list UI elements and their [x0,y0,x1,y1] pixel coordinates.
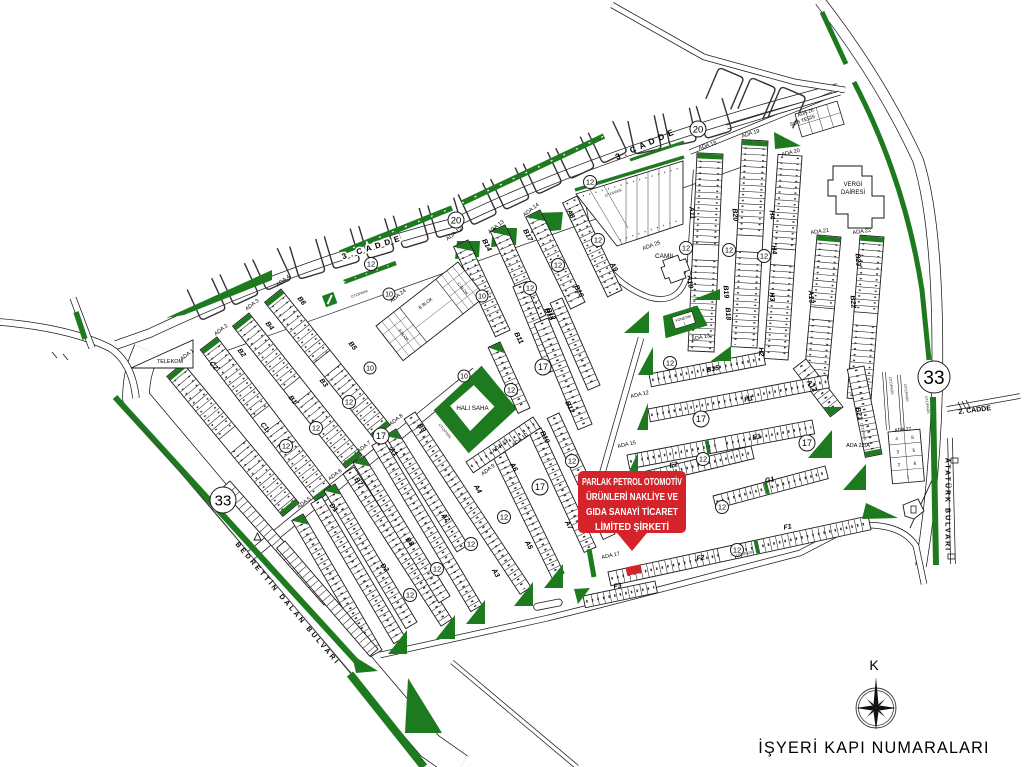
svg-text:H4: H4 [768,210,776,220]
svg-text:17: 17 [538,362,548,372]
svg-text:12: 12 [586,178,594,187]
svg-text:LİMİTED ŞİRKETİ: LİMİTED ŞİRKETİ [595,520,669,533]
svg-text:K: K [869,657,879,673]
svg-text:A10: A10 [685,274,693,289]
svg-text:B23: B23 [853,253,861,267]
svg-text:HALI SAHA: HALI SAHA [456,405,489,412]
svg-text:12: 12 [312,424,320,433]
svg-text:12: 12 [500,513,508,522]
svg-text:12: 12 [594,236,602,245]
svg-text:GIDA SANAYİ TİCARET: GIDA SANAYİ TİCARET [586,505,678,518]
svg-text:17: 17 [376,431,386,441]
svg-text:12: 12 [568,457,576,466]
svg-text:CAMII: CAMII [655,253,673,260]
svg-text:17: 17 [802,438,812,448]
svg-text:12: 12 [760,252,768,261]
svg-text:H3: H3 [768,292,776,302]
svg-text:12: 12 [367,260,375,269]
svg-text:ATATÜRK BULVARI: ATATÜRK BULVARI [944,458,953,552]
svg-text:12: 12 [682,244,690,253]
svg-text:10: 10 [478,294,486,301]
svg-text:A13: A13 [806,289,814,304]
svg-text:12: 12 [699,455,707,464]
svg-text:ADA 22/A: ADA 22/A [846,443,870,449]
svg-text:20: 20 [693,124,704,135]
svg-text:İŞYERİ KAPI NUMARALARI: İŞYERİ KAPI NUMARALARI [758,738,990,757]
svg-text:12: 12 [467,540,475,549]
svg-text:TELEKOM: TELEKOM [157,359,184,365]
svg-text:H4: H4 [770,245,778,255]
svg-text:10: 10 [366,366,374,373]
svg-text:33: 33 [215,492,232,509]
svg-text:12: 12 [526,284,534,293]
svg-text:A11: A11 [687,205,695,219]
svg-text:H2: H2 [757,347,765,357]
svg-text:17: 17 [535,482,545,492]
svg-text:12: 12 [666,359,674,368]
svg-text:B18: B18 [723,307,731,321]
svg-text:20: 20 [451,215,462,226]
svg-text:B20: B20 [730,208,738,222]
svg-text:B19: B19 [721,285,729,299]
svg-text:ÜRÜNLERİ NAKLİYE VE: ÜRÜNLERİ NAKLİYE VE [586,490,678,503]
svg-text:12: 12 [718,503,726,512]
svg-text:12: 12 [406,591,414,600]
svg-text:B22: B22 [848,295,856,309]
svg-text:DAİRESİ: DAİRESİ [841,189,865,196]
svg-text:12: 12 [507,386,515,395]
svg-text:VERGİ: VERGİ [844,181,863,188]
svg-text:12: 12 [554,261,562,270]
svg-text:12: 12 [345,398,353,407]
svg-text:17: 17 [696,414,706,424]
svg-text:12: 12 [433,565,441,574]
svg-text:33: 33 [923,368,944,389]
svg-text:12: 12 [725,246,733,255]
svg-text:PARLAK PETROL OTOMOTİV: PARLAK PETROL OTOMOTİV [582,475,682,488]
svg-text:10: 10 [460,374,468,381]
svg-text:12: 12 [282,442,290,451]
